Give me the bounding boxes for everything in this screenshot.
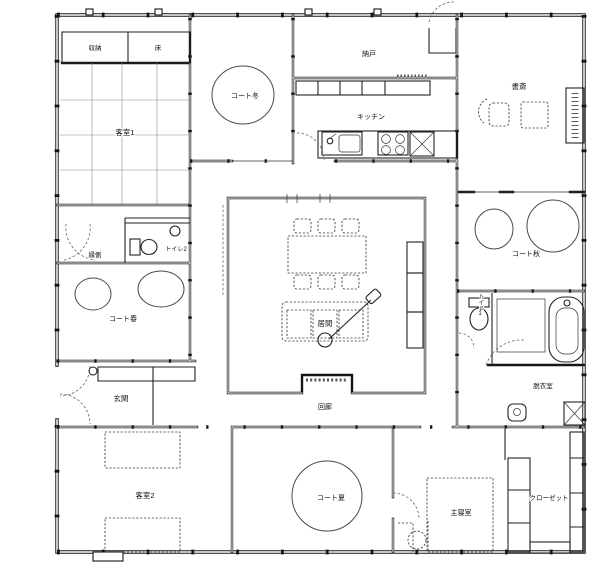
room-label-living: 居間 <box>318 319 333 328</box>
master-bedroom <box>393 478 493 552</box>
room-label-nando: 納戸 <box>362 49 376 58</box>
chair-icon <box>489 103 509 126</box>
room-label-storage: 収納 <box>89 43 102 52</box>
closet-area <box>505 429 584 553</box>
kitchen-cabinets <box>296 81 430 95</box>
room-label-court-winter: コート冬 <box>231 91 259 100</box>
room-label-corridor: 回廊 <box>318 402 332 411</box>
wall-post-marks <box>57 15 584 552</box>
shoe-cabinet <box>98 367 195 381</box>
interior-walls <box>57 15 584 552</box>
outer-walls <box>57 15 584 552</box>
room-label-master: 主寝室 <box>451 508 472 517</box>
entrance-step <box>93 552 123 561</box>
floor-plan-canvas: 収納 床 客室1 コート冬 納戸 キッチン 書斎 縁側 トイレ2 コート春 コー… <box>0 0 600 569</box>
sofa-cushion <box>339 310 363 338</box>
room-label-engawa: 縁側 <box>89 250 103 259</box>
kitchen-area <box>296 2 457 160</box>
desk-icon <box>566 88 584 143</box>
dining-chair-icon <box>318 275 335 289</box>
floor-lamp-icon <box>318 288 382 347</box>
court-autumn-trees <box>475 200 579 252</box>
closet-shelves <box>570 432 584 552</box>
table-icon <box>521 102 548 128</box>
engawa-toilet2 <box>64 218 190 263</box>
room-label-study: 書斎 <box>512 81 527 91</box>
kitchen-hatch-box <box>410 132 434 156</box>
room-label-toko: 床 <box>155 43 162 52</box>
room-label-toilet2: トイレ2 <box>165 247 187 253</box>
floor-plan-drawing: 収納 床 客室1 コート冬 納戸 キッチン 書斎 縁側 トイレ2 コート春 コー… <box>0 0 600 569</box>
futon-icon <box>105 518 180 552</box>
room-label-court-autumn: コート秋 <box>512 249 540 258</box>
study-room <box>478 88 584 143</box>
bathtub-icon <box>556 308 578 354</box>
tree-icon <box>75 278 111 310</box>
living-room-furniture <box>282 219 423 348</box>
wall-post-cap <box>86 9 93 15</box>
dining-table-icon <box>288 236 366 273</box>
wall-niche <box>407 312 423 348</box>
room-label-guest1: 客室1 <box>115 127 134 137</box>
room-label-toilet1: トイレ1 <box>477 293 484 317</box>
dining-chair-icon <box>294 219 311 233</box>
washbasin-icon <box>408 531 426 549</box>
closet-shelves <box>508 458 530 552</box>
room-label-court-summer: コート夏 <box>317 494 345 502</box>
door-swing <box>297 133 324 160</box>
door-swing <box>459 333 474 348</box>
room-label-guest2: 客室2 <box>135 490 154 500</box>
washbasin-icon <box>170 226 180 236</box>
dining-chair-icon <box>342 219 359 233</box>
tree-icon <box>527 200 579 252</box>
toilet-icon <box>130 239 140 255</box>
tree-icon <box>475 209 513 249</box>
dining-chair-icon <box>294 275 311 289</box>
washbasin-icon <box>508 404 526 421</box>
chair-icon <box>478 99 487 123</box>
dining-chair-icon <box>318 219 335 233</box>
guest-room1 <box>60 32 190 205</box>
futon-icon <box>105 432 180 468</box>
room-labels: 収納 床 客室1 コート冬 納戸 キッチン 書斎 縁側 トイレ2 コート春 コー… <box>89 43 569 517</box>
closet-strip <box>62 32 190 63</box>
kitchen-sink-icon <box>322 132 362 155</box>
door-swing <box>60 366 90 424</box>
room-label-entrance: 玄関 <box>114 393 129 403</box>
bathtub-icon <box>549 297 584 362</box>
wall-niche <box>407 273 423 312</box>
tree-icon <box>138 271 184 307</box>
wall-post-cap <box>155 9 162 15</box>
service-porch <box>429 28 456 53</box>
sofa-cushion <box>287 310 311 338</box>
room-label-kitchen: キッチン <box>357 113 385 121</box>
stove-icon <box>378 132 408 155</box>
room-label-dressing: 脱衣室 <box>533 381 553 390</box>
living-room-walls <box>223 194 425 393</box>
door-swing <box>393 493 419 519</box>
door-swing <box>429 2 454 22</box>
wall-post-cap <box>374 9 381 15</box>
room-label-court-spring: コート春 <box>109 314 137 323</box>
room-label-closet: クローゼット <box>530 493 569 502</box>
wall-post-cap <box>305 9 312 15</box>
washbasin-icon <box>514 409 521 416</box>
wall-niche <box>407 242 423 273</box>
dining-chair-icon <box>342 275 359 289</box>
faucet-icon <box>564 300 570 306</box>
court-spring-trees <box>75 271 184 310</box>
toilet-icon <box>141 240 157 255</box>
laundry-box <box>564 402 585 425</box>
